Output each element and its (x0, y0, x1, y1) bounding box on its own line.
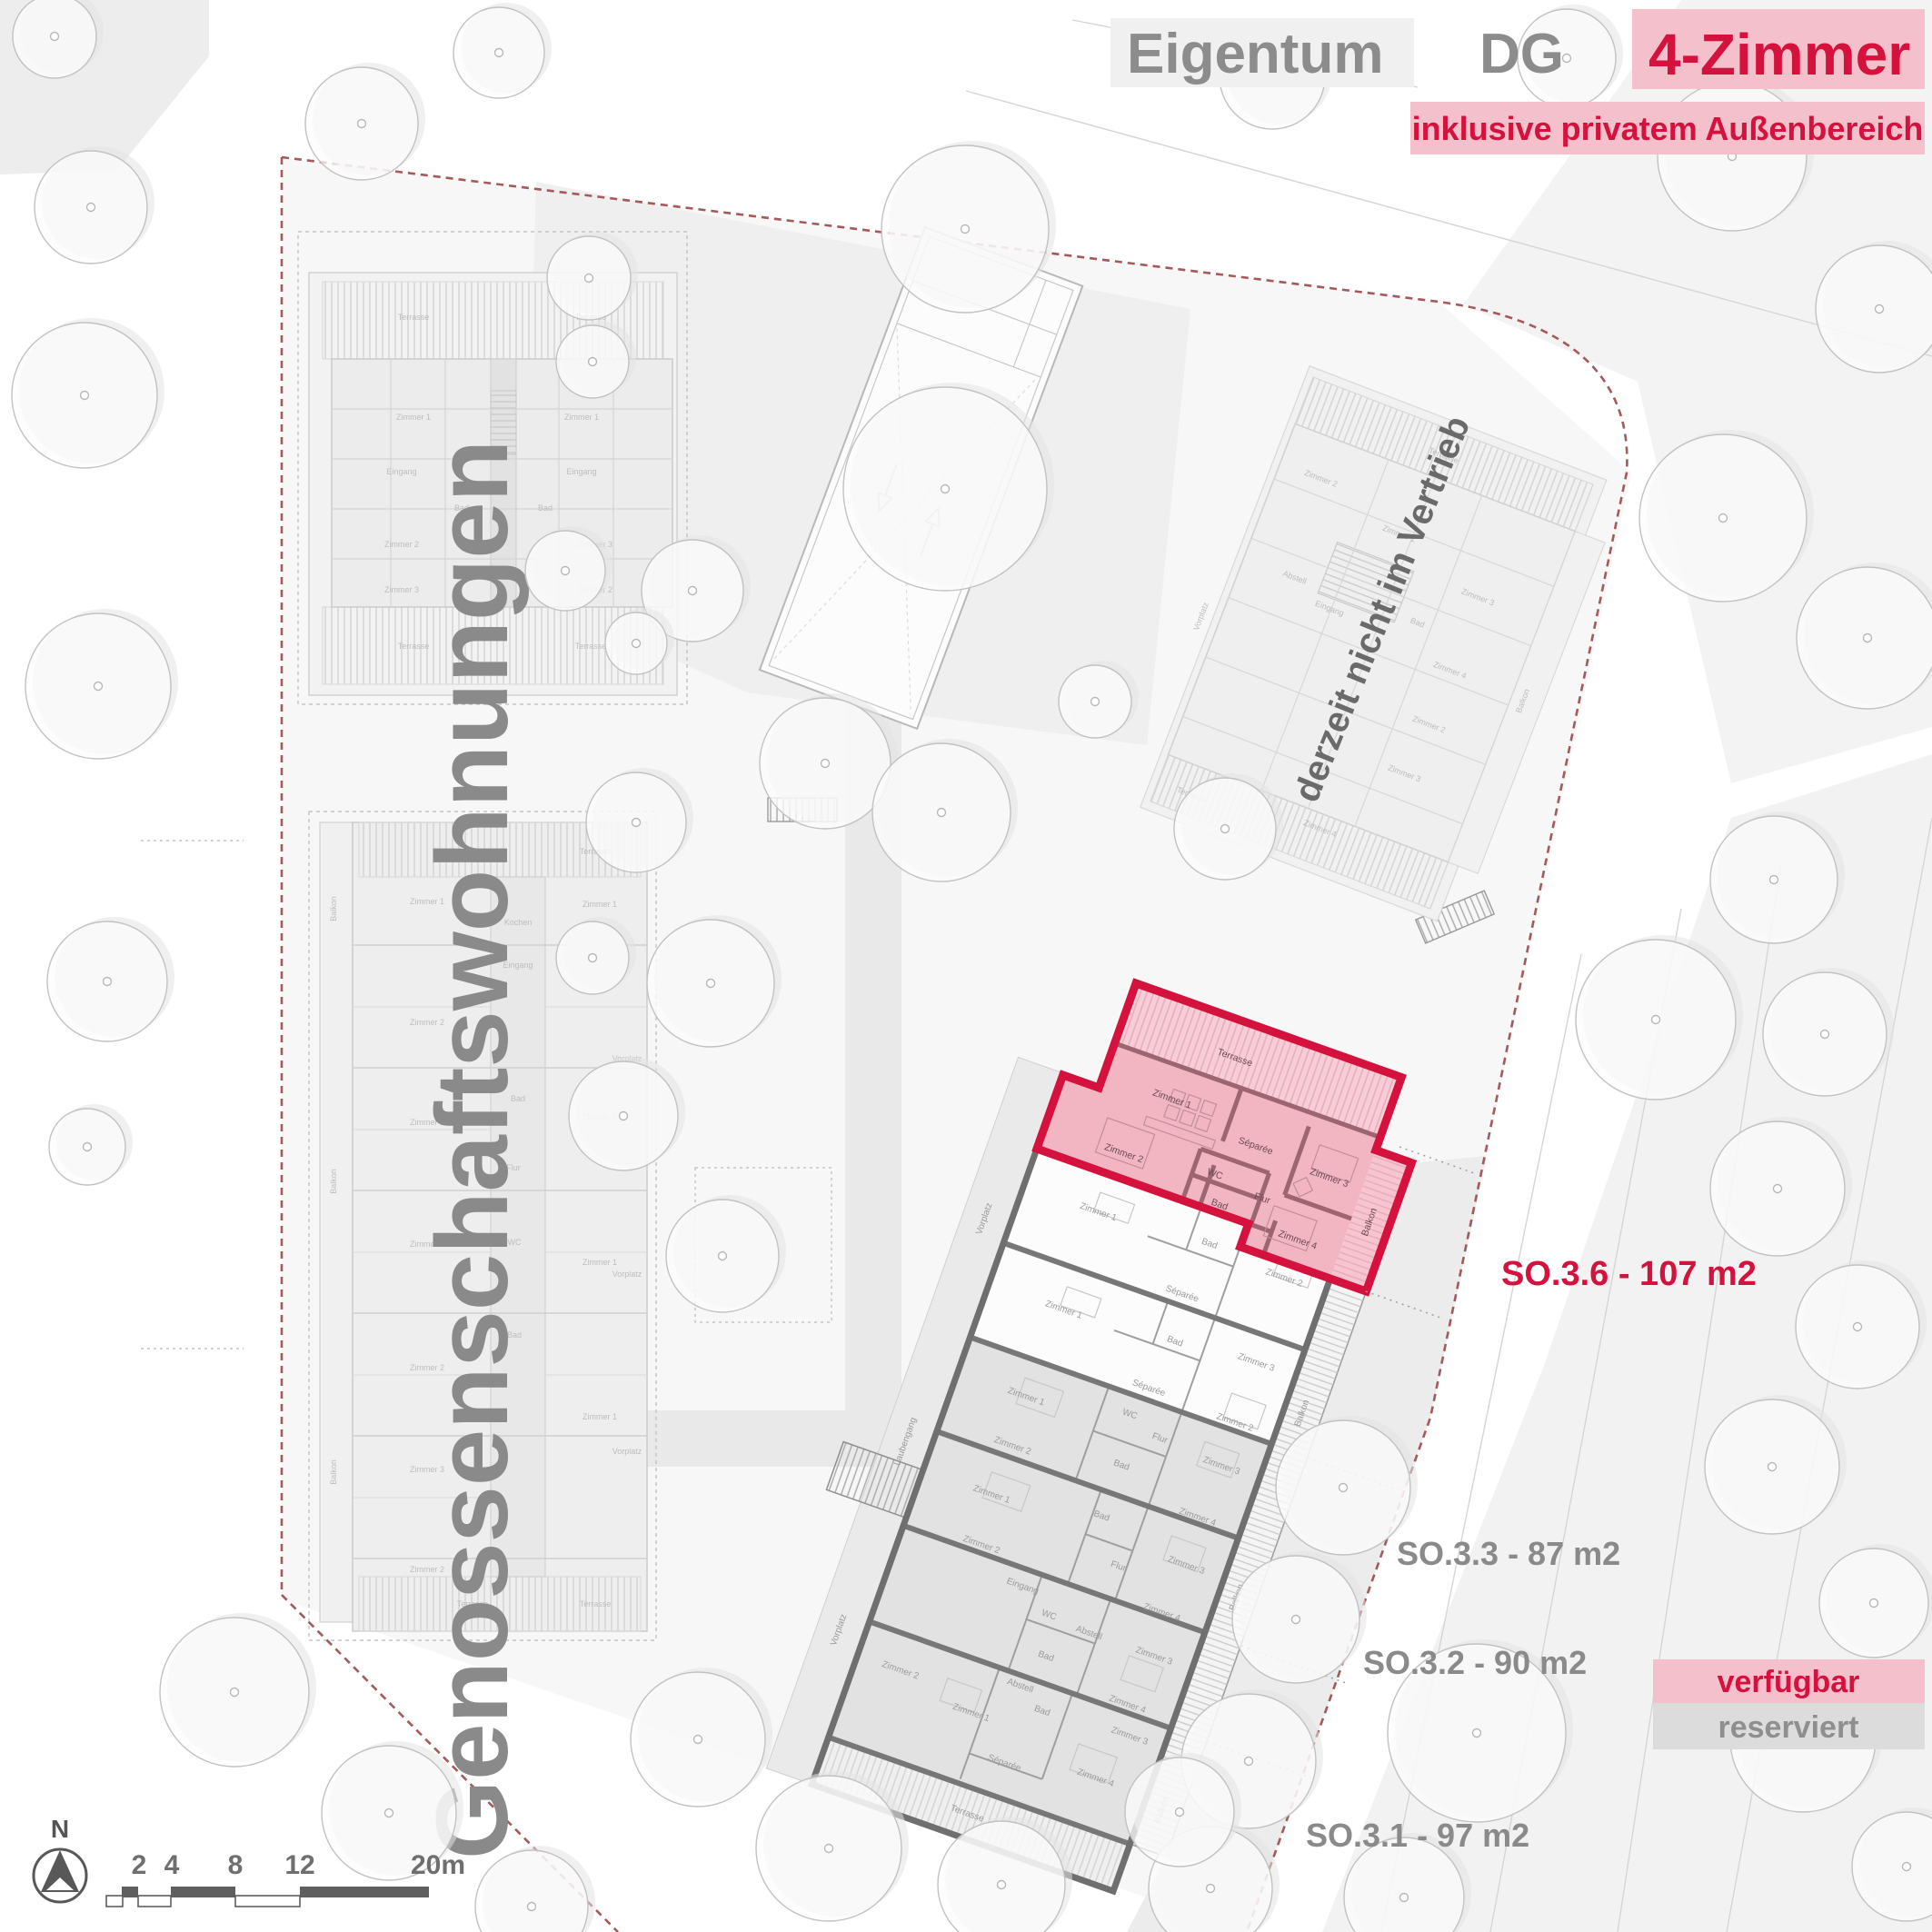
room-label: Balkon (329, 1459, 338, 1485)
room-label: Zimmer 1 (396, 413, 431, 422)
page-title-mid: DG (1479, 23, 1564, 85)
legend-available-label: verfügbar (1718, 1665, 1860, 1699)
room-label: Terrasse (398, 313, 430, 322)
room-label: Zimmer 1 (583, 1412, 617, 1421)
room-label: Balkon (329, 896, 338, 921)
scale-tick-4: 4 (164, 1850, 180, 1880)
page-title-left: Eigentum (1127, 23, 1383, 85)
room-label: Terrasse (575, 642, 607, 651)
north-label: N (51, 1815, 69, 1843)
room-label: Zimmer 1 (583, 1258, 617, 1267)
label-so31: SO.3.1 - 97 m2 (1306, 1817, 1529, 1854)
room-label: Eingang (386, 467, 416, 476)
room-label: Eingang (566, 467, 596, 476)
room-label: Vorplatz (612, 1447, 642, 1456)
label-so33: SO.3.3 - 87 m2 (1397, 1535, 1620, 1572)
room-label: Balkon (329, 1169, 338, 1194)
room-label: Zimmer 2 (384, 540, 419, 549)
label-so36: SO.3.6 - 107 m2 (1501, 1255, 1757, 1293)
room-label: Zimmer 3 (384, 585, 419, 594)
room-label: Zimmer 1 (564, 413, 599, 422)
legend: verfügbar reserviert (1653, 1659, 1925, 1749)
room-label: Vorplatz (612, 1270, 642, 1279)
room-label: Zimmer 1 (583, 900, 617, 909)
coop-building-label: Genossenschaftswohnungen (415, 440, 529, 1859)
page-subtitle: inklusive privatem Außenbereich (1412, 110, 1924, 147)
page-title-right: 4-Zimmer (1648, 22, 1910, 87)
room-label: Terrasse (580, 1599, 612, 1608)
scale-tick-8: 8 (228, 1850, 244, 1880)
scale-tick-12: 12 (284, 1850, 314, 1880)
scale-tick-2: 2 (132, 1850, 147, 1880)
legend-reserved-label: reserviert (1718, 1710, 1858, 1745)
label-so32: SO.3.2 - 90 m2 (1363, 1644, 1587, 1681)
scale-tick-20: 20m (411, 1850, 465, 1880)
site-plan: TerrasseTerrasseZimmer 1Zimmer 1EingangE… (0, 0, 1932, 1932)
room-label: Bad (538, 503, 553, 513)
